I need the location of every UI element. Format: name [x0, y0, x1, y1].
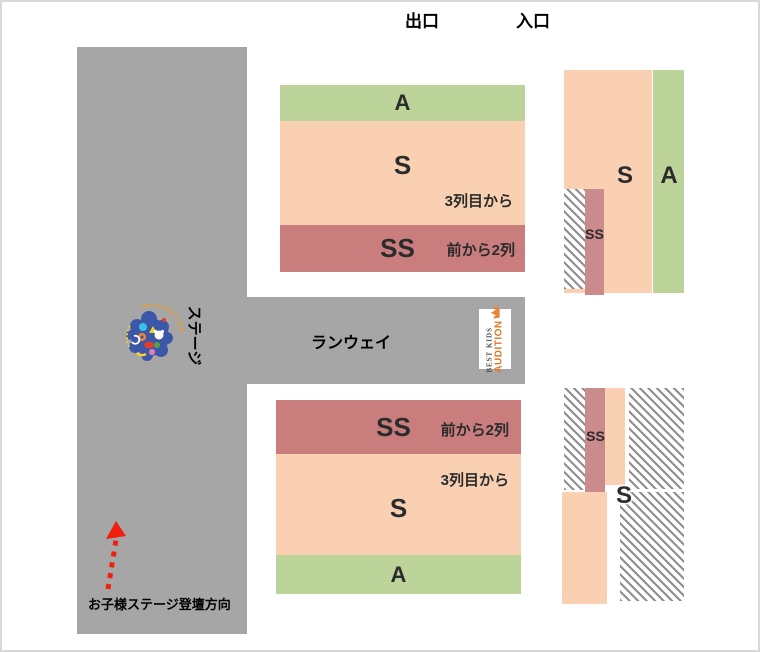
- seating-chart: 出口 入口 IMAGINATION: [0, 0, 760, 652]
- seat-section-s-lower: S 3列目から: [276, 454, 521, 555]
- section-ss-note: 前から2列: [441, 419, 509, 440]
- right-ss-label: SS: [581, 226, 608, 242]
- right-seat-ss: [585, 189, 604, 295]
- stage-label: ステージ: [184, 305, 205, 365]
- section-s-note: 3列目から: [441, 469, 509, 490]
- right-upper-block: S A SS: [564, 70, 684, 295]
- section-a-label: A: [395, 90, 411, 116]
- right-lower-block: SS S: [562, 388, 687, 604]
- stage-area: IMAGINATION ステージ お子様ステージ登壇方向: [77, 47, 247, 634]
- stage-direction-caption: お子様ステージ登壇方向: [88, 594, 231, 613]
- right-lower-seat-s: [562, 492, 607, 604]
- stage-direction-arrow-icon: [97, 520, 127, 592]
- logo-line2: AUDITION: [494, 320, 505, 372]
- section-a-label: A: [391, 562, 407, 588]
- runway: ランウェイ BEST KIDS AUDITION: [247, 297, 525, 384]
- right-s-label: S: [605, 162, 645, 190]
- right-lower-hatch-2: [629, 388, 684, 489]
- stage-label-wrap: ステージ: [165, 303, 225, 367]
- entrance-label: 入口: [516, 7, 550, 32]
- seat-section-a-lower: A: [276, 555, 521, 594]
- center-lower-block: SS 前から2列 S 3列目から A: [276, 400, 521, 594]
- seat-section-ss-upper: SS 前から2列: [280, 225, 525, 272]
- runway-label: ランウェイ: [311, 329, 461, 353]
- section-ss-label: SS: [376, 412, 411, 443]
- center-upper-block: A S 3列目から SS 前から2列: [280, 85, 525, 272]
- exit-label: 出口: [405, 7, 439, 32]
- section-s-label: S: [394, 150, 411, 181]
- right-lower-ss-label: SS: [582, 428, 609, 444]
- right-lower-s-label: S: [609, 482, 639, 510]
- seat-section-a-upper: A: [280, 85, 525, 121]
- section-s-note: 3列目から: [445, 190, 513, 211]
- seat-section-s-upper: S 3列目から: [280, 121, 525, 225]
- section-ss-note: 前から2列: [447, 239, 515, 260]
- crown-icon: [490, 306, 500, 318]
- right-a-label: A: [649, 162, 689, 190]
- logo-line1: BEST KIDS: [486, 320, 494, 372]
- section-ss-label: SS: [380, 233, 415, 264]
- best-kids-audition-logo: BEST KIDS AUDITION: [479, 309, 511, 369]
- section-s-label: S: [390, 493, 407, 524]
- seat-section-ss-lower: SS 前から2列: [276, 400, 521, 454]
